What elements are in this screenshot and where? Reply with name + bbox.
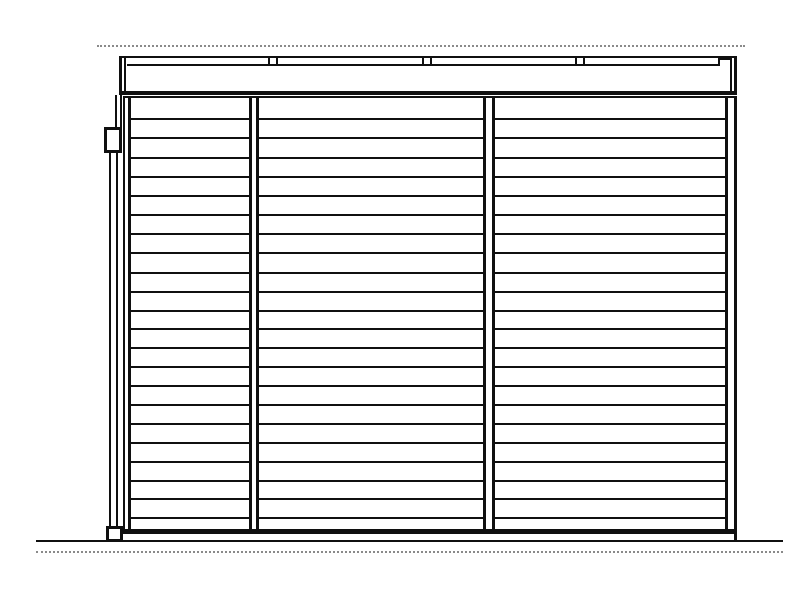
wall-slat-line [127,498,731,500]
wall-top-line [123,96,737,98]
cap-joint-tick [422,56,424,66]
wall-slat-line [127,347,731,349]
wall-slat-line [127,291,731,293]
wall-slat-line [127,310,731,312]
wall-post-right [483,98,495,529]
downspout-pipe [109,153,118,527]
downspout-foot [106,526,123,541]
fascia-cap-right-step-horizontal [718,58,731,60]
wall-slat-line [127,328,731,330]
wall-slat-line [127,272,731,274]
cap-joint-tick [268,56,270,66]
downspout-collector-box [104,127,122,153]
wall-slat-line [127,252,731,254]
wall-left-edge-post [123,98,131,534]
cap-joint-tick [276,56,278,66]
ground-line [36,540,783,542]
wall-slat-line [127,423,731,425]
roof-overhang-dashed-line [97,45,745,47]
wall-post-left [249,98,259,529]
ground-dashed-line [36,551,783,553]
wall-slat-line [127,461,731,463]
downspout-upper-pipe [115,95,122,128]
wall-slat-line [127,157,731,159]
wall-slat-line [127,195,731,197]
wall-slat-line [127,385,731,387]
wall-slat-line [127,214,731,216]
cap-joint-tick [575,56,577,66]
wall-slat-line [127,233,731,235]
wall-slat-line [127,517,731,519]
elevation-drawing-canvas [0,0,800,600]
wall-slat-line [127,366,731,368]
wall-right-edge-post [725,98,737,534]
wall-slat-line [127,176,731,178]
fascia-band [119,56,737,95]
wall-slat-line [127,137,731,139]
cap-joint-tick [583,56,585,66]
wall-slat-line [127,442,731,444]
wall-slat-line [127,404,731,406]
wall-bottom-rail [123,529,737,534]
wall-slat-line [127,118,731,120]
cap-joint-tick [430,56,432,66]
wall-slat-line [127,480,731,482]
fascia-right-inner-line [730,58,732,93]
fascia-left-inner-line [124,58,126,93]
